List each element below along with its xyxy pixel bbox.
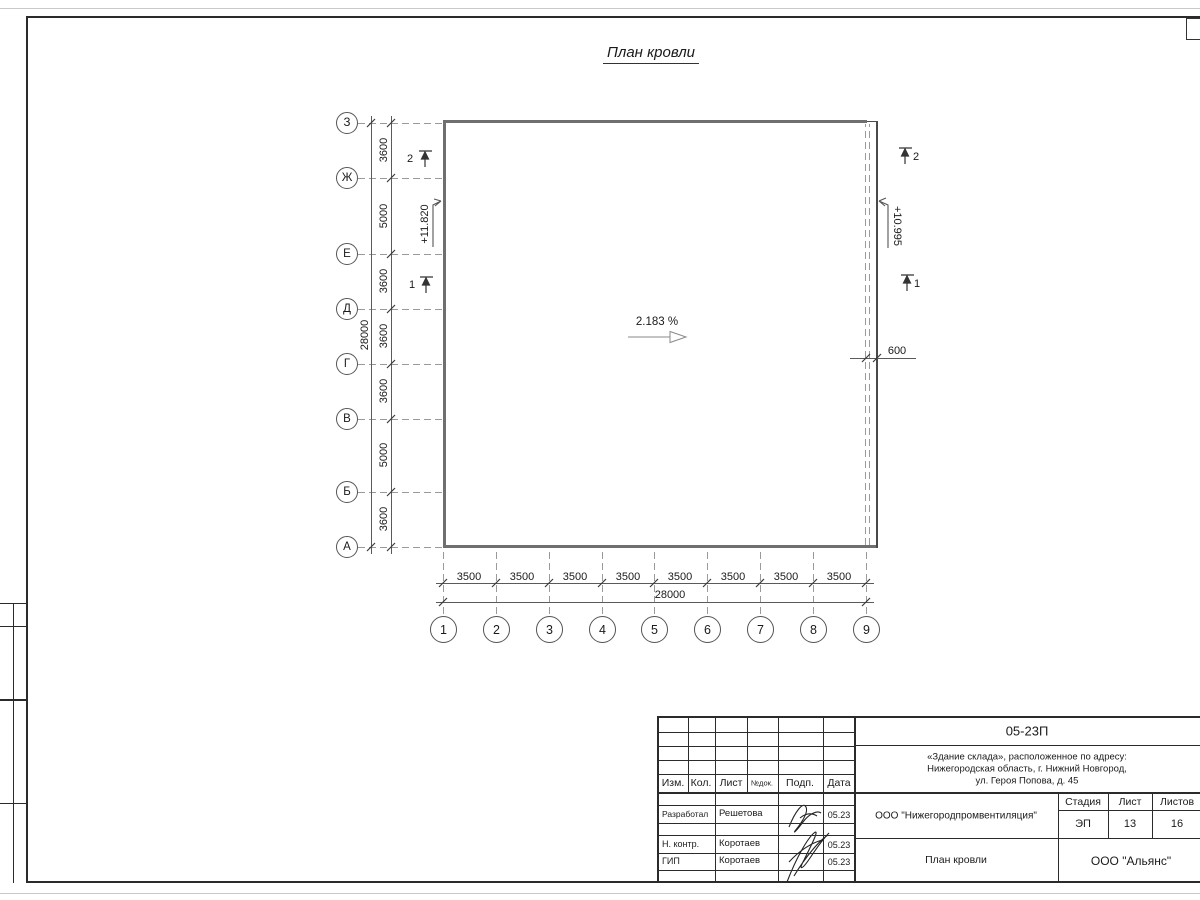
tb-line: [658, 760, 855, 761]
tb-role: ГИП: [662, 856, 680, 866]
tb-role: Н. контр.: [662, 839, 699, 849]
tb-client-org: ООО "Альянс": [1091, 854, 1171, 868]
tb-object-line1: «Здание склада», расположенное по адресу…: [927, 752, 1127, 763]
tb-col-podp: Подп.: [786, 777, 814, 789]
tb-doc-number: 05-23П: [1006, 724, 1049, 739]
tb-line: [658, 792, 1200, 794]
tb-line: [658, 853, 855, 854]
tb-designer-org: ООО "Нижегородпромвентиляция": [875, 811, 1037, 822]
signature-icon: [789, 805, 821, 832]
tb-line: [658, 835, 855, 836]
tb-date: 05.23: [828, 840, 851, 850]
tb-line: [1108, 793, 1109, 838]
tb-drawing-title: План кровли: [925, 854, 987, 866]
elevation-arrow-right-icon: [879, 198, 888, 248]
tb-date: 05.23: [828, 857, 851, 867]
tb-line: [658, 746, 855, 747]
tb-line: [823, 717, 824, 883]
tb-object-line2: Нижегородская область, г. Нижний Новгоро…: [927, 764, 1127, 775]
tb-stage-value: ЭП: [1075, 818, 1091, 830]
dim-ticks: [367, 119, 881, 606]
tb-col-kol: Кол.: [691, 777, 712, 789]
tb-line: [854, 716, 856, 883]
elevation-arrow-left-icon: [433, 199, 441, 247]
tb-line: [658, 870, 855, 871]
tb-line: [658, 823, 855, 824]
tb-line: [1152, 793, 1153, 838]
tb-sheets-value: 16: [1171, 818, 1183, 830]
tb-line: [1058, 810, 1200, 811]
tb-line: [657, 716, 659, 883]
tb-name: Коротаев: [719, 855, 760, 866]
slope-arrow-icon: [628, 332, 686, 343]
tb-role: Разработал: [662, 809, 708, 819]
tb-line: [715, 717, 716, 883]
tb-line: [778, 717, 779, 883]
tb-col-list: Лист: [720, 777, 743, 789]
tb-line: [1058, 793, 1059, 883]
tb-sheets-label: Листов: [1160, 796, 1194, 808]
tb-col-ndok: №док.: [751, 779, 773, 788]
tb-object-line3: ул. Героя Попова, д. 45: [976, 776, 1079, 787]
tb-line: [658, 805, 855, 806]
tb-name: Решетова: [719, 808, 763, 819]
tb-line: [657, 716, 1200, 718]
tb-stage-label: Стадия: [1065, 796, 1101, 808]
tb-sheet-label: Лист: [1119, 796, 1142, 808]
tb-line: [747, 717, 748, 793]
section-mark-icons: [419, 148, 914, 293]
tb-line: [658, 732, 855, 733]
tb-line: [855, 838, 1200, 839]
tb-col-izm: Изм.: [662, 777, 685, 789]
drawing-sheet: План кровли З Ж Е Д Г В Б А 1 2 3 4 5 6 …: [0, 0, 1200, 900]
tb-name: Коротаев: [719, 838, 760, 849]
tb-line: [658, 774, 855, 775]
tb-date: 05.23: [828, 810, 851, 820]
tb-line: [855, 745, 1200, 746]
tb-sheet-value: 13: [1124, 818, 1136, 830]
tb-col-data: Дата: [827, 777, 850, 789]
tb-line: [688, 717, 689, 793]
